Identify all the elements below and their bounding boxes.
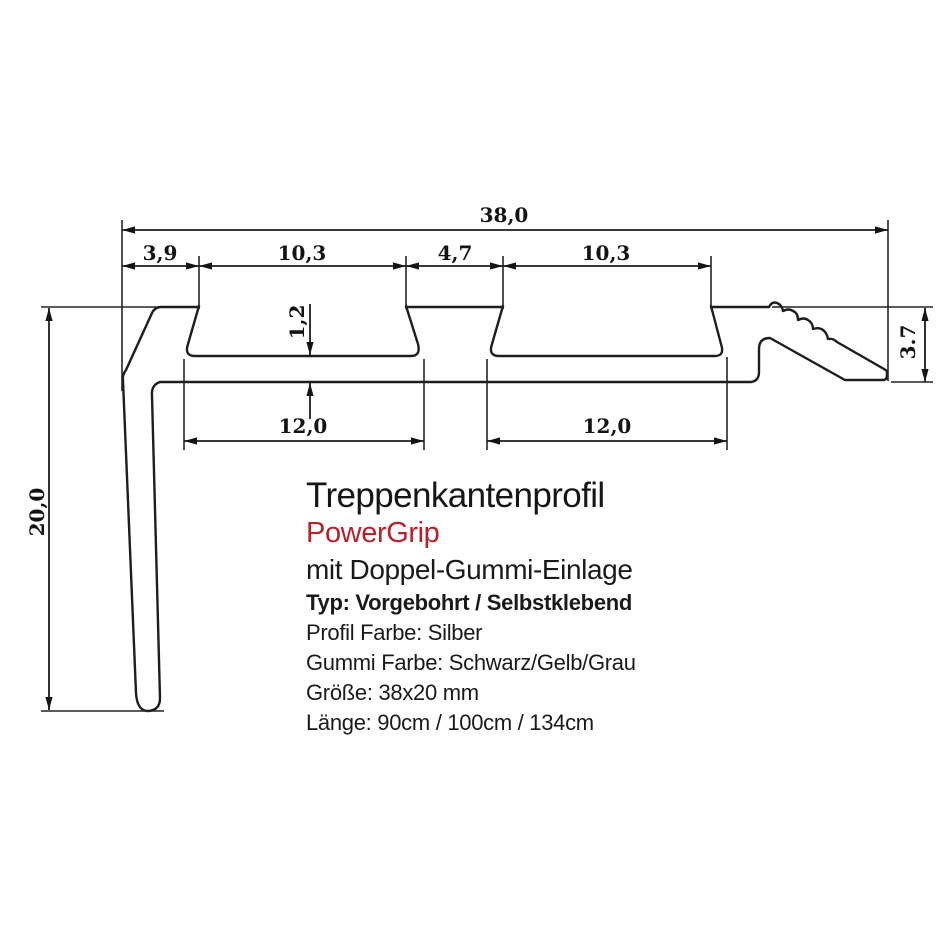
product-size-line: Größe: 38x20 mm — [306, 678, 636, 708]
dim-base-thickness-label: 1,2 — [285, 305, 309, 340]
dim-groove2-top-label: 10,3 — [582, 241, 631, 265]
product-length-line: Länge: 90cm / 100cm / 134cm — [306, 708, 636, 738]
technical-drawing: 38,0 3,9 10,3 4,7 10,3 12,0 12,0 20,0 1,… — [0, 0, 940, 940]
product-subtitle: mit Doppel-Gummi-Einlage — [306, 551, 636, 588]
dim-nose-height-label: 3.7 — [896, 325, 920, 360]
dim-left-offset-label: 3,9 — [143, 241, 178, 265]
serrated-nose-edge — [769, 303, 887, 372]
dim-groove1-top-label: 10,3 — [278, 241, 327, 265]
dim-total-width-label: 38,0 — [480, 203, 529, 227]
dim-center-rib-label: 4,7 — [438, 241, 473, 265]
rubber-groove-right — [491, 306, 722, 356]
product-type-line: Typ: Vorgebohrt / Selbstklebend — [306, 588, 636, 618]
product-technical-drawing-image: 38,0 3,9 10,3 4,7 10,3 12,0 12,0 20,0 1,… — [0, 0, 940, 940]
product-brand: PowerGrip — [306, 515, 636, 551]
dim-leg-height-label: 20,0 — [25, 488, 49, 537]
dim-groove2-bottom-label: 12,0 — [583, 414, 632, 438]
product-profile-color-line: Profil Farbe: Silber — [306, 618, 636, 648]
dim-groove1-bottom-label: 12,0 — [279, 414, 328, 438]
product-title: Treppenkantenprofil — [306, 477, 636, 515]
product-rubber-color-line: Gummi Farbe: Schwarz/Gelb/Grau — [306, 648, 636, 678]
product-info-block: Treppenkantenprofil PowerGrip mit Doppel… — [306, 477, 636, 738]
